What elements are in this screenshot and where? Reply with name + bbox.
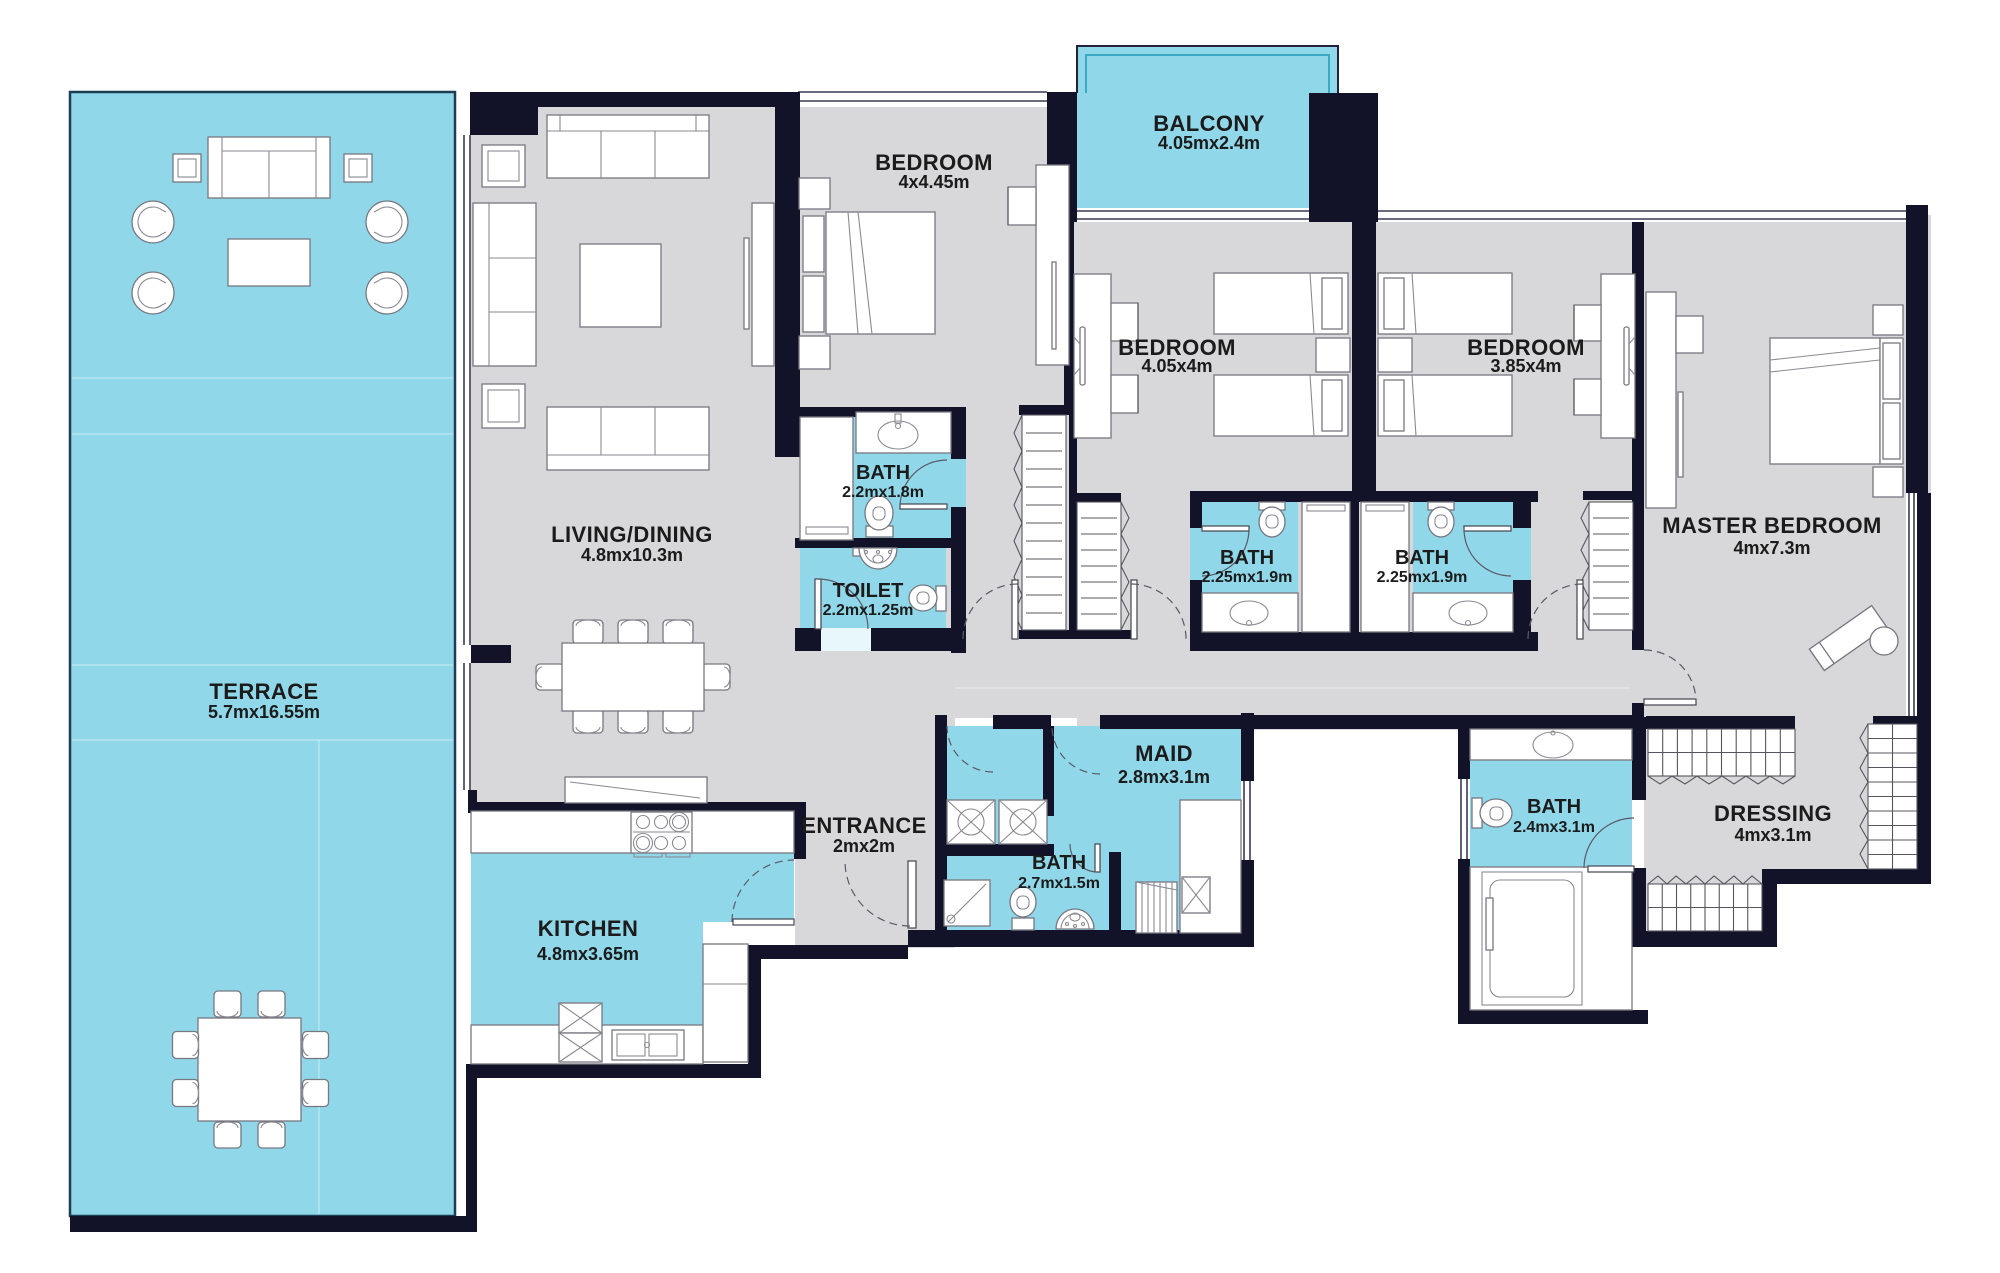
svg-text:BATH: BATH xyxy=(1032,852,1086,874)
svg-text:2.25mx1.9m: 2.25mx1.9m xyxy=(1377,569,1468,586)
svg-text:5.7mx16.55m: 5.7mx16.55m xyxy=(208,702,320,722)
svg-text:TERRACE: TERRACE xyxy=(209,679,318,704)
svg-text:4.05x4m: 4.05x4m xyxy=(1141,356,1212,376)
svg-text:DRESSING: DRESSING xyxy=(1714,801,1832,826)
svg-text:2.8mx3.1m: 2.8mx3.1m xyxy=(1118,767,1210,787)
svg-text:2.7mx1.5m: 2.7mx1.5m xyxy=(1018,875,1100,892)
svg-text:4mx7.3m: 4mx7.3m xyxy=(1733,538,1810,558)
svg-text:TOILET: TOILET xyxy=(833,580,904,602)
svg-text:BATH: BATH xyxy=(1395,547,1449,569)
svg-text:2mx2m: 2mx2m xyxy=(833,836,895,856)
svg-text:4.8mx10.3m: 4.8mx10.3m xyxy=(581,545,683,565)
svg-text:MAID: MAID xyxy=(1135,741,1193,766)
svg-text:4mx3.1m: 4mx3.1m xyxy=(1734,825,1811,845)
svg-text:2.4mx3.1m: 2.4mx3.1m xyxy=(1513,819,1595,836)
svg-text:KITCHEN: KITCHEN xyxy=(538,916,639,941)
svg-text:2.2mx1.8m: 2.2mx1.8m xyxy=(842,484,924,501)
svg-text:LIVING/DINING: LIVING/DINING xyxy=(551,522,713,547)
svg-text:4.05mx2.4m: 4.05mx2.4m xyxy=(1158,133,1260,153)
svg-text:BATH: BATH xyxy=(1220,547,1274,569)
svg-text:2.25mx1.9m: 2.25mx1.9m xyxy=(1202,569,1293,586)
svg-text:MASTER BEDROOM: MASTER BEDROOM xyxy=(1662,513,1882,538)
svg-text:4x4.45m: 4x4.45m xyxy=(898,172,969,192)
svg-text:ENTRANCE: ENTRANCE xyxy=(801,813,926,838)
svg-text:3.85x4m: 3.85x4m xyxy=(1490,356,1561,376)
svg-text:BATH: BATH xyxy=(856,462,910,484)
svg-text:2.2mx1.25m: 2.2mx1.25m xyxy=(823,602,914,619)
svg-text:BATH: BATH xyxy=(1527,796,1581,818)
svg-text:4.8mx3.65m: 4.8mx3.65m xyxy=(537,944,639,964)
